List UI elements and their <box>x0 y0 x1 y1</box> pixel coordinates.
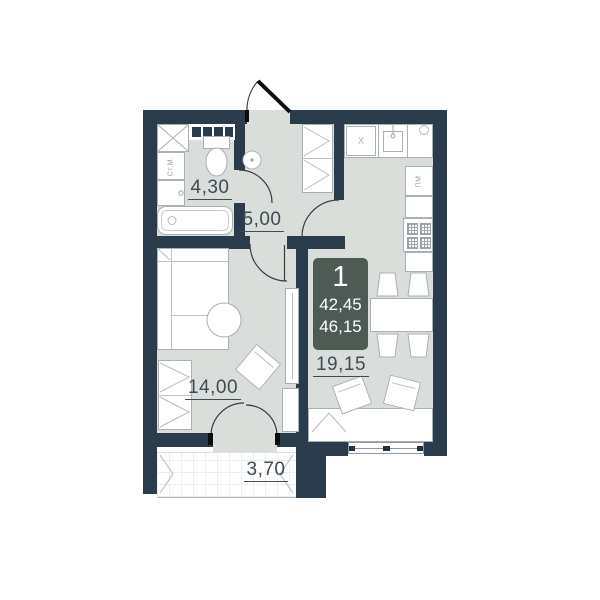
entrance-threshold <box>247 110 290 124</box>
wall-top-left <box>143 110 247 124</box>
vent-shaft-box <box>157 124 189 152</box>
window-mullion <box>383 446 390 451</box>
wall-hall-bottom <box>287 236 345 249</box>
hob-position: X <box>346 126 376 156</box>
balcony-area-label: 3,70 <box>238 459 294 481</box>
sofa-back-line-h <box>158 261 228 262</box>
armchair-back-line <box>338 383 361 392</box>
dining-table <box>370 298 433 332</box>
living-room-area-label: 14,00 <box>181 377 245 399</box>
window-mullion <box>417 446 423 451</box>
hallway-area-label: 5,00 <box>234 209 290 231</box>
sofa-back-line-v <box>171 249 172 349</box>
bathroom-area-label: 4,30 <box>182 177 238 199</box>
unit-total-area: 46,15 <box>319 316 362 338</box>
armchair-back-line <box>392 382 416 389</box>
tv-unit-line <box>292 293 293 379</box>
burner <box>420 223 431 235</box>
washing-machine-label: Ст.М. <box>168 156 175 176</box>
toilet-tank <box>203 136 230 149</box>
entrance-door-arc <box>247 81 258 112</box>
kitchen-sink-bowl <box>383 131 403 152</box>
entrance-door-leaf <box>258 81 290 112</box>
dishwasher-label: ПМ <box>416 175 423 187</box>
dishwasher: ПМ <box>405 166 433 196</box>
corner-sofa <box>157 248 229 350</box>
wall-top-right <box>290 110 447 124</box>
window-mullion <box>349 446 355 451</box>
kitchen-counter-right-1 <box>405 196 433 218</box>
window-sill-bench <box>308 408 433 442</box>
unit-living-area: 42,45 <box>319 294 362 316</box>
hall-closet <box>302 124 333 193</box>
wall-right <box>433 110 447 456</box>
duct-block <box>192 127 201 137</box>
wall-living-bottom-left <box>143 433 213 447</box>
bathroom-sink <box>157 180 185 206</box>
balcony-threshold <box>213 433 277 452</box>
wall-hall-kitchen <box>334 124 344 200</box>
bathtub <box>157 206 233 235</box>
sofa-seat-line <box>171 315 228 316</box>
kitchen-living-area-label: 19,15 <box>311 354 371 376</box>
closet-divider <box>303 158 332 159</box>
tv-unit <box>285 288 299 384</box>
side-cabinet <box>282 388 299 432</box>
kitchen-counter-right-2 <box>405 252 433 272</box>
stove <box>403 218 433 252</box>
unit-number: 1 <box>332 261 348 294</box>
kitchen-window <box>348 442 424 454</box>
wall-kitchen-bottom <box>308 442 348 456</box>
floor-plan: Ст.М. X ПМ <box>0 0 600 600</box>
burner <box>407 223 418 235</box>
washing-machine: Ст.М. <box>157 152 185 180</box>
wall-kitchen-bottom-corner <box>424 442 447 456</box>
burner <box>420 237 431 249</box>
hob-mark-label: X <box>358 136 365 147</box>
burner <box>407 237 418 249</box>
unit-info-badge: 1 42,45 46,15 <box>313 258 368 350</box>
wall-bathroom-right-upper <box>234 124 245 170</box>
bathtub-inner <box>161 210 229 231</box>
